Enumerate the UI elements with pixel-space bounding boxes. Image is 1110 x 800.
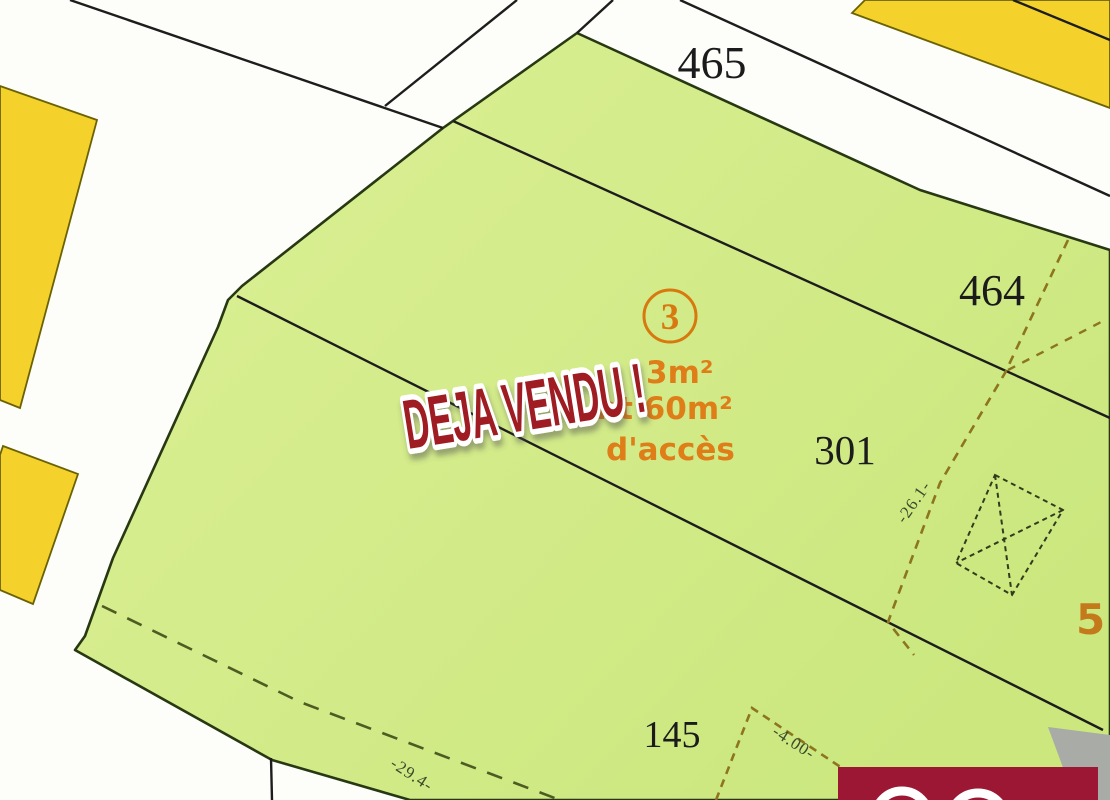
cadastral-map-page: 465 464 301 145 -26.1- -4.00- -29.4- 3 3…: [0, 0, 1110, 800]
parcel-label-465: 465: [678, 37, 747, 88]
parcel-label-301: 301: [814, 427, 876, 473]
cadastral-map: 465 464 301 145 -26.1- -4.00- -29.4- 3 3…: [0, 0, 1110, 800]
agency-logo: [838, 767, 1098, 800]
partial-parcel-label-right: 5: [1076, 595, 1105, 644]
note-access-word: d'accès: [606, 432, 735, 468]
boundary-bottom-left: [271, 758, 272, 800]
parcel-label-464: 464: [959, 266, 1025, 315]
note-area-fragment: 3m²: [646, 355, 713, 391]
lot-badge-number: 3: [661, 297, 680, 338]
parcel-label-145: 145: [644, 714, 701, 756]
